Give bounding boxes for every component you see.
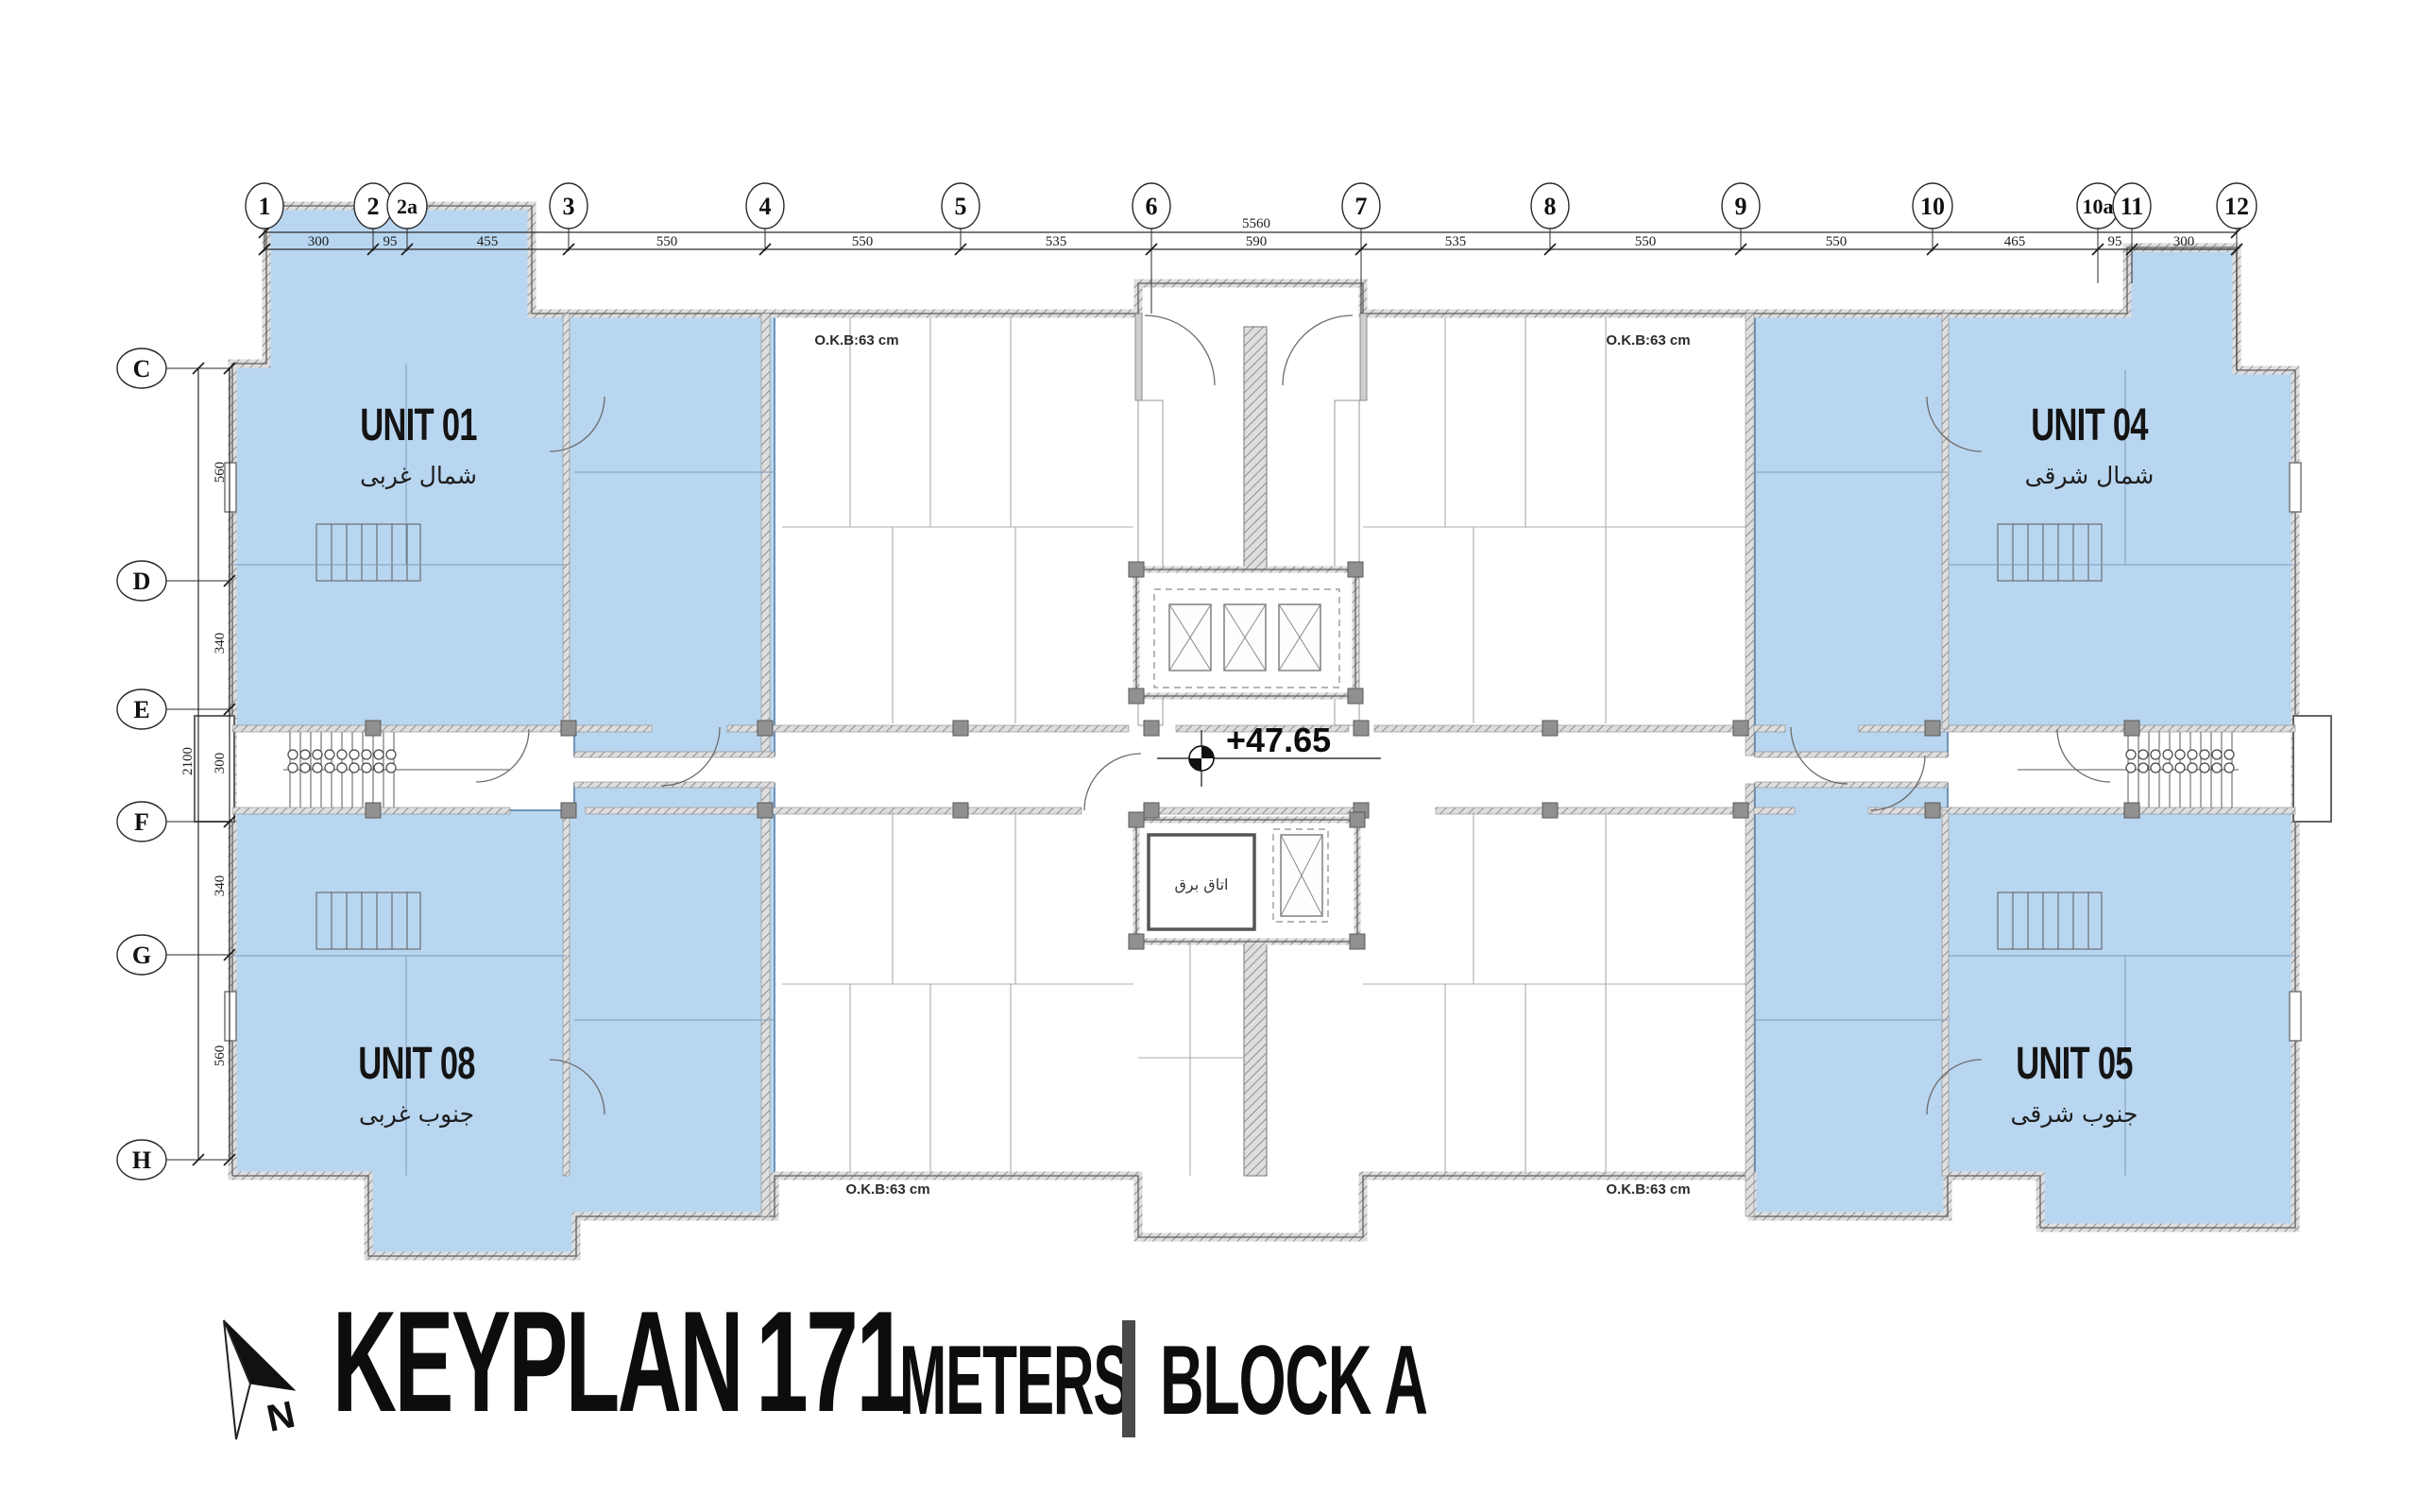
unit-05-subtitle: جنوب شرقی <box>2011 1100 2138 1128</box>
unit-01-label: UNIT 01 <box>360 399 477 450</box>
okb-label-top-right: O.K.B:63 cm <box>1606 332 1690 348</box>
svg-text:F: F <box>134 808 149 836</box>
svg-text:1: 1 <box>259 193 271 220</box>
unit-01-region <box>232 206 775 756</box>
svg-text:455: 455 <box>477 234 499 249</box>
okb-label-bottom-left: O.K.B:63 cm <box>845 1181 929 1198</box>
svg-text:4: 4 <box>759 193 772 220</box>
svg-text:550: 550 <box>656 234 678 249</box>
svg-text:340: 340 <box>213 633 228 654</box>
svg-text:535: 535 <box>1046 234 1067 249</box>
svg-text:560: 560 <box>213 462 228 484</box>
title-meters: METERS <box>899 1332 1130 1430</box>
keyplan-drawing: اتاق برق <box>0 0 2419 1512</box>
svg-text:H: H <box>132 1147 151 1174</box>
unit-05-region <box>1755 784 2295 1228</box>
okb-label-top-left: O.K.B:63 cm <box>814 332 898 348</box>
stair-west <box>283 732 510 807</box>
svg-text:550: 550 <box>1635 234 1657 249</box>
svg-text:E: E <box>133 696 149 723</box>
svg-text:10: 10 <box>1920 193 1945 220</box>
svg-text:2a: 2a <box>397 195 417 218</box>
svg-text:12: 12 <box>2224 193 2249 220</box>
unit-05-label: UNIT 05 <box>2016 1037 2133 1088</box>
row-grid-bubbles <box>117 348 166 1180</box>
svg-text:11: 11 <box>2121 193 2144 220</box>
okb-label-bottom-right: O.K.B:63 cm <box>1606 1181 1690 1198</box>
north-letter: N <box>264 1394 298 1440</box>
unit-08-subtitle: جنوب غربی <box>359 1100 474 1128</box>
service-elevator <box>1281 835 1322 916</box>
svg-text:560: 560 <box>213 1045 228 1067</box>
svg-text:3: 3 <box>563 193 575 220</box>
elevator-3 <box>1279 604 1320 671</box>
svg-text:95: 95 <box>383 234 398 249</box>
north-arrow-icon: N <box>224 1320 298 1440</box>
service-core-lower <box>1136 820 1357 942</box>
svg-text:590: 590 <box>1246 234 1268 249</box>
svg-text:D: D <box>133 568 151 595</box>
svg-text:340: 340 <box>213 875 228 897</box>
svg-text:300: 300 <box>213 753 228 774</box>
svg-text:6: 6 <box>1146 193 1158 220</box>
unit-04-label: UNIT 04 <box>2031 399 2149 450</box>
svg-text:9: 9 <box>1735 193 1747 220</box>
core-spine-wall-upper <box>1244 327 1267 569</box>
elevator-1 <box>1169 604 1211 671</box>
top-total-dimension: 5560 <box>1242 216 1270 231</box>
vestibule-wall-right <box>1360 314 1367 400</box>
left-total-dimension: 2100 <box>180 747 196 775</box>
electrical-room-label: اتاق برق <box>1175 875 1229 894</box>
unit-08-label: UNIT 08 <box>358 1037 475 1088</box>
svg-text:8: 8 <box>1544 193 1557 220</box>
unit-04-subtitle: شمال شرقی <box>2025 462 2155 489</box>
svg-text:10a: 10a <box>2083 195 2114 218</box>
row-grid-labels: C D E F G H <box>132 355 151 1174</box>
svg-text:535: 535 <box>1445 234 1467 249</box>
svg-text:550: 550 <box>852 234 874 249</box>
title-divider <box>1122 1320 1135 1437</box>
svg-text:2: 2 <box>367 193 380 220</box>
svg-text:465: 465 <box>2004 234 2026 249</box>
svg-text:300: 300 <box>308 234 330 249</box>
level-value: +47.65 <box>1226 721 1331 759</box>
title-height: 171 <box>756 1290 906 1434</box>
vestibule-wall-left <box>1135 314 1142 400</box>
svg-text:7: 7 <box>1355 193 1368 220</box>
title-keyplan: KEYPLAN <box>332 1290 741 1434</box>
corridor-east-vestibule <box>2293 716 2331 822</box>
unit-04-region <box>1755 247 2295 756</box>
elevator-2 <box>1224 604 1266 671</box>
svg-text:C: C <box>133 355 151 382</box>
svg-text:550: 550 <box>1826 234 1848 249</box>
title-block-name: BLOCK A <box>1160 1332 1427 1430</box>
svg-text:5: 5 <box>955 193 967 220</box>
svg-text:G: G <box>132 942 151 969</box>
core-spine-wall-lower <box>1244 942 1267 1176</box>
svg-text:300: 300 <box>2173 234 2195 249</box>
svg-text:95: 95 <box>2108 234 2122 249</box>
stair-east <box>2018 732 2239 807</box>
unit-01-subtitle: شمال غربی <box>360 462 477 489</box>
